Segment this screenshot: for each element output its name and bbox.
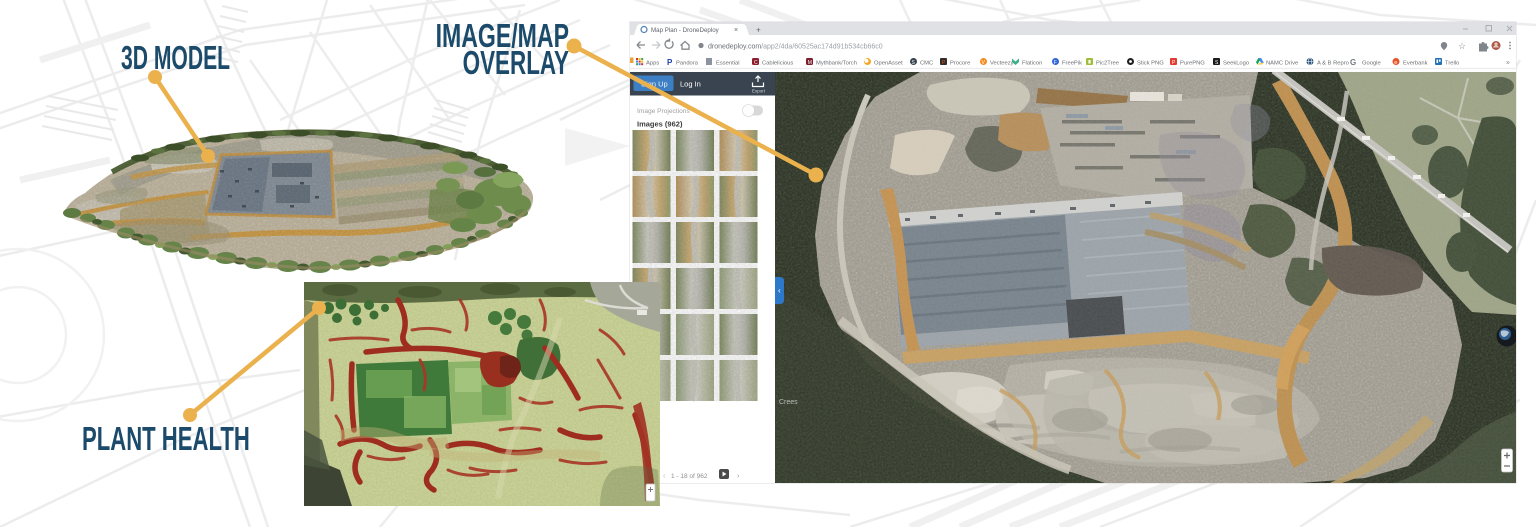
svg-text:CMC: CMC — [920, 61, 933, 67]
svg-text:Images (962): Images (962) — [637, 120, 683, 129]
svg-text:P: P — [667, 58, 673, 67]
svg-text:OVERLAY: OVERLAY — [463, 44, 570, 81]
svg-text:Image Projections: Image Projections — [637, 108, 690, 115]
svg-text:Crees: Crees — [779, 399, 798, 406]
svg-text:Mythbank/Torch: Mythbank/Torch — [816, 61, 857, 67]
svg-text:Map Plan - DroneDeploy: Map Plan - DroneDeploy — [651, 27, 720, 34]
svg-text:Everbank: Everbank — [1403, 61, 1428, 67]
svg-text:Vecteezy: Vecteezy — [990, 61, 1014, 67]
svg-text:Google: Google — [1362, 61, 1381, 67]
svg-text:☆: ☆ — [1458, 41, 1466, 51]
svg-text:Pandora: Pandora — [676, 61, 699, 67]
svg-text:1 - 18 of 962: 1 - 18 of 962 — [671, 473, 708, 480]
svg-text:C: C — [754, 60, 758, 66]
svg-text:Flaticon: Flaticon — [1022, 61, 1042, 67]
svg-text:Apps: Apps — [646, 61, 659, 67]
svg-text:‹: ‹ — [778, 286, 781, 295]
svg-text:Essential: Essential — [716, 61, 740, 67]
svg-text:Trello: Trello — [1445, 61, 1459, 67]
svg-text:OpenAsset: OpenAsset — [874, 61, 903, 67]
svg-text:SeekLogo: SeekLogo — [1223, 61, 1249, 67]
svg-text:dronedeploy.com/app2/4da/60525: dronedeploy.com/app2/4da/60525ac174d91b5… — [708, 43, 883, 50]
svg-text:A & B Repro: A & B Repro — [1317, 61, 1349, 67]
svg-text:Procore: Procore — [950, 61, 970, 67]
svg-text:Export: Export — [752, 89, 766, 94]
svg-text:»: » — [1506, 60, 1510, 67]
svg-text:G: G — [1350, 58, 1356, 67]
svg-text:3D MODEL: 3D MODEL — [121, 39, 230, 76]
svg-text:PLANT HEALTH: PLANT HEALTH — [82, 421, 250, 457]
svg-text:F: F — [1054, 60, 1057, 66]
svg-text:Pic2Tree: Pic2Tree — [1096, 61, 1119, 67]
svg-text:Stick PNG: Stick PNG — [1137, 61, 1164, 67]
svg-text:e: e — [1394, 60, 1397, 66]
svg-text:+: + — [756, 26, 761, 35]
svg-text:PurePNG: PurePNG — [1180, 61, 1205, 67]
svg-text:FreePik: FreePik — [1062, 61, 1082, 67]
svg-text:Log In: Log In — [680, 80, 701, 89]
svg-text:×: × — [734, 27, 738, 34]
svg-text:M: M — [808, 60, 812, 66]
svg-text:Cablelicious: Cablelicious — [762, 61, 793, 67]
svg-text:NAMC Drive: NAMC Drive — [1266, 61, 1298, 67]
